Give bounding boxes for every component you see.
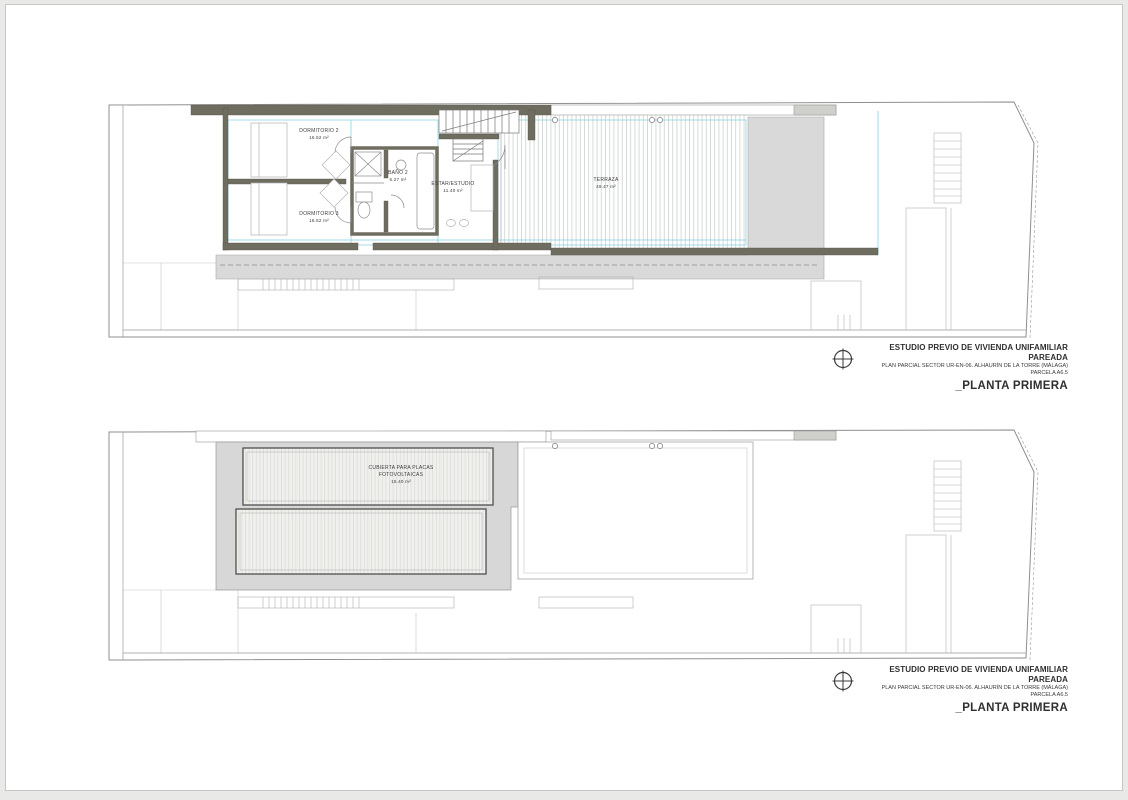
room-name: ESTAR/ESTUDIO	[431, 181, 474, 187]
parapet-strip	[551, 105, 836, 115]
room-area: 16.52 m²	[309, 218, 329, 223]
room-dormitorio-2: DORMITORIO 2 16.52 m²	[299, 128, 339, 140]
parcel-label: PARCELA A6.5	[854, 692, 1068, 699]
garden-steps	[238, 597, 633, 608]
roof-label-area: 15.40 m²	[391, 479, 411, 484]
garden-features-right	[811, 133, 961, 330]
room-area: 5.27 m²	[390, 177, 407, 182]
bathroom-fixtures	[352, 152, 434, 229]
terrace-decking	[501, 115, 748, 248]
title-block-lower: ESTUDIO PREVIO DE VIVIENDA UNIFAMILIAR P…	[832, 665, 1068, 715]
room-area: 11.40 m²	[443, 188, 463, 193]
sheet-title: ESTUDIO PREVIO DE VIVIENDA UNIFAMILIAR P…	[854, 665, 1068, 685]
parapet-strip	[196, 431, 836, 442]
plan-name: _PLANTA PRIMERA	[854, 379, 1068, 393]
room-area: 49.47 m²	[596, 184, 616, 189]
room-name: TERRAZA	[593, 177, 619, 183]
parcel-label: PARCELA A6.5	[854, 370, 1068, 377]
sheet-subtitle: PLAN PARCIAL SECTOR UR-EN-06. ALHAURÍN D…	[854, 685, 1068, 692]
drawing-sheet: DORMITORIO 2 16.52 m² DORMITORIO 3 16.52…	[5, 4, 1123, 791]
crosshair-icon	[832, 670, 854, 692]
garden-features-right	[811, 461, 961, 653]
roof-label-line2: FOTOVOLTAICAS	[379, 472, 424, 478]
terrace-outline	[518, 442, 753, 579]
floor-plan-lower: CUBIERTA PARA PLACAS FOTOVOLTAICAS 15.40…	[101, 425, 1046, 665]
floor-plan-upper: DORMITORIO 2 16.52 m² DORMITORIO 3 16.52…	[101, 93, 1046, 345]
room-name: BAÑO 2	[388, 169, 408, 176]
room-dormitorio-3: DORMITORIO 3 16.52 m²	[299, 211, 339, 223]
crosshair-icon	[832, 348, 854, 370]
roof-label-line1: CUBIERTA PARA PLACAS	[368, 465, 433, 471]
sheet-subtitle: PLAN PARCIAL SECTOR UR-EN-06. ALHAURÍN D…	[854, 363, 1068, 370]
room-name: DORMITORIO 3	[299, 211, 339, 217]
roof-panel-upper	[243, 448, 493, 505]
title-block-upper: ESTUDIO PREVIO DE VIVIENDA UNIFAMILIAR P…	[832, 343, 1068, 393]
plan-name: _PLANTA PRIMERA	[854, 701, 1068, 715]
sheet-title: ESTUDIO PREVIO DE VIVIENDA UNIFAMILIAR P…	[854, 343, 1068, 363]
garden-lines	[123, 590, 416, 653]
room-name: DORMITORIO 2	[299, 128, 339, 134]
roof-panel-lower	[236, 509, 486, 574]
room-area: 16.52 m²	[309, 135, 329, 140]
room-bano-2: BAÑO 2 5.27 m²	[388, 169, 408, 182]
